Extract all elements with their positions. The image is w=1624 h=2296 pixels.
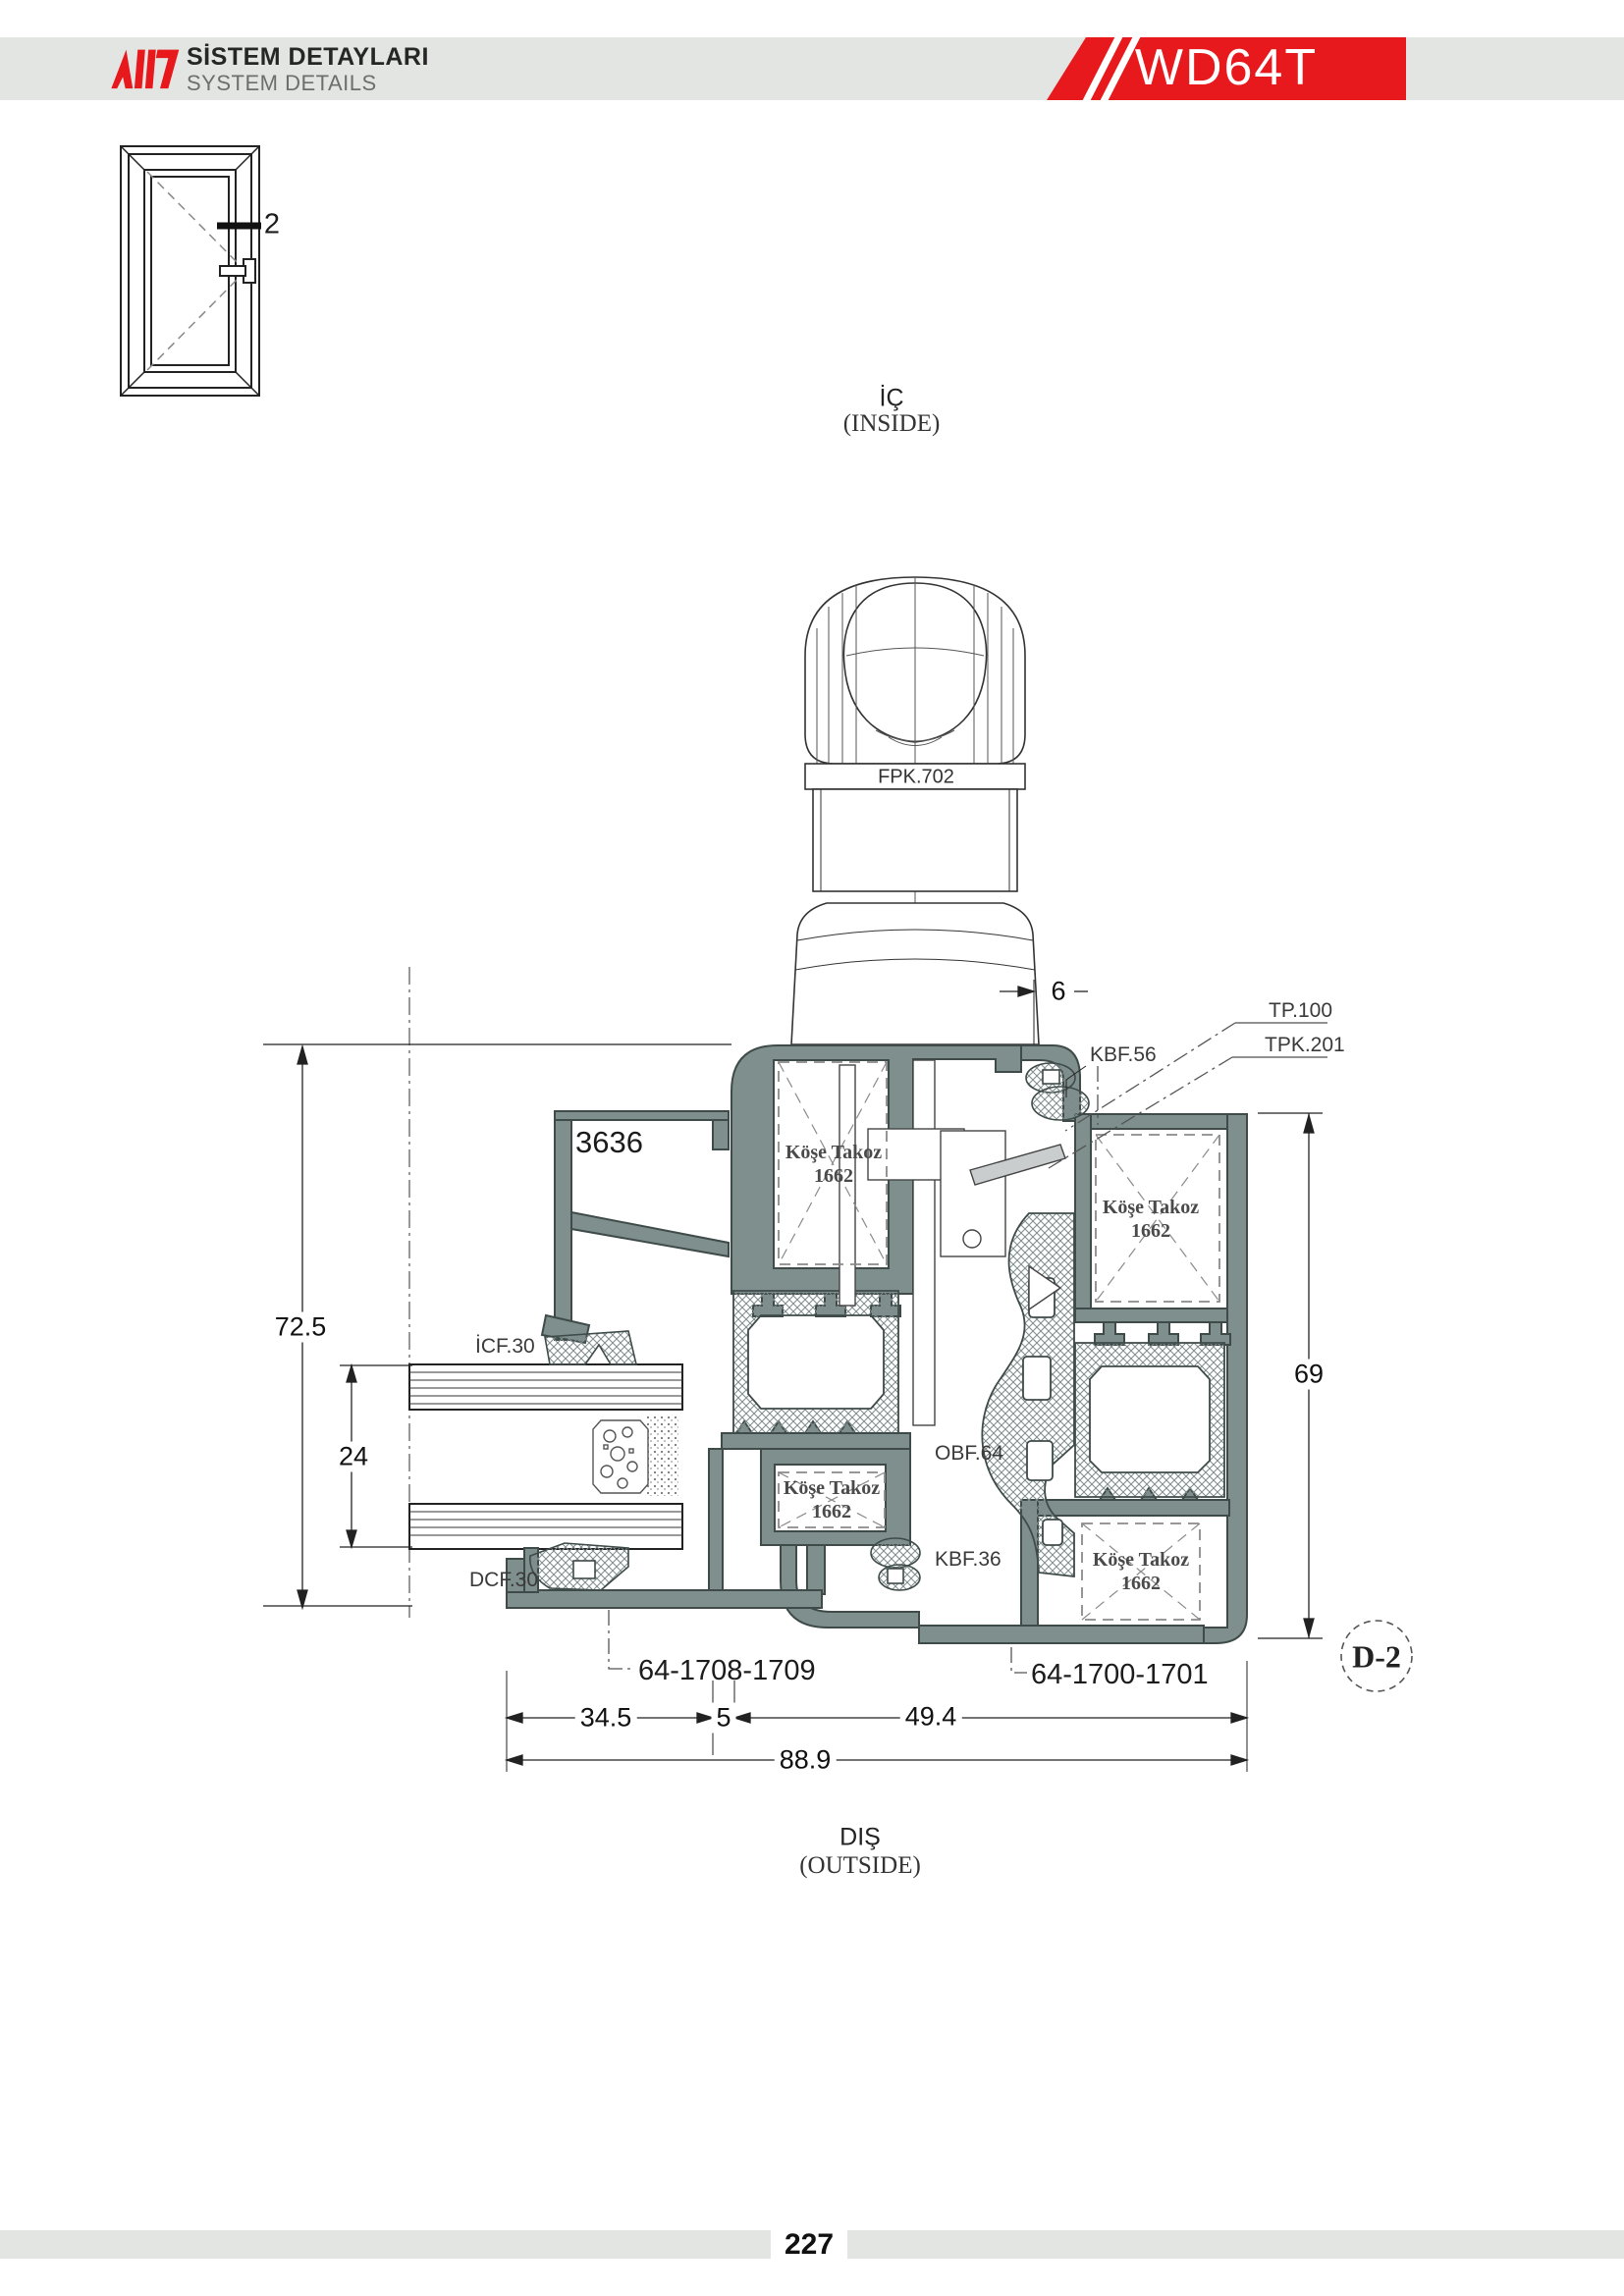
- obf64-label: OBF.64: [935, 1442, 1003, 1466]
- glazing-unit: [409, 1364, 682, 1549]
- handle-drawing: [791, 577, 1039, 1044]
- dim-glass: 24: [334, 1442, 373, 1472]
- dim-overall-height: 72.5: [270, 1312, 332, 1343]
- spacer-sealant: [647, 1415, 678, 1496]
- inside-label-en: (INSIDE): [843, 410, 941, 438]
- corner-block-label: Köşe Takoz 1662: [1103, 1196, 1199, 1243]
- dim-total-width: 88.9: [775, 1745, 837, 1776]
- icf30-label: İCF.30: [475, 1335, 535, 1359]
- glass-spacer: [593, 1420, 648, 1493]
- handle-label: FPK.702: [878, 767, 954, 789]
- section-marker: 2: [264, 209, 280, 241]
- outside-label-en: (OUTSIDE): [799, 1852, 921, 1880]
- dim-sash-width: 34.5: [575, 1703, 637, 1734]
- outside-label-tr: DIŞ: [839, 1824, 881, 1852]
- kbf56-label: KBF.56: [1090, 1043, 1157, 1067]
- inside-label-tr: İÇ: [880, 385, 904, 413]
- corner-block-label: Köşe Takoz 1662: [785, 1141, 882, 1188]
- dim-frame-height: 69: [1289, 1360, 1328, 1390]
- corner-block-label: Köşe Takoz 1662: [784, 1476, 880, 1523]
- corner-block-label: Köşe Takoz 1662: [1093, 1548, 1189, 1595]
- page-number: 227: [771, 2226, 847, 2264]
- frame-part-number: 64-1700-1701: [1031, 1659, 1209, 1691]
- dim-gap: 5: [711, 1703, 735, 1734]
- detail-ref: D-2: [1352, 1639, 1401, 1676]
- kbf36-gasket: [871, 1538, 920, 1590]
- glazing-bead-label: 3636: [575, 1125, 643, 1160]
- window-icon: [121, 146, 259, 396]
- dim-frame-width: 49.4: [900, 1702, 962, 1733]
- sash-part-number: 64-1708-1709: [638, 1655, 816, 1687]
- tp100-label: TP.100: [1269, 999, 1332, 1023]
- dim-handle-offset: 6: [1046, 977, 1070, 1007]
- kbf36-label: KBF.36: [935, 1548, 1001, 1572]
- catalog-page: SİSTEM DETAYLARI SYSTEM DETAILS WD64T: [0, 0, 1624, 2296]
- icf30-gasket: [545, 1331, 636, 1364]
- dcf30-label: DCF.30: [469, 1569, 538, 1592]
- tpk201-label: TPK.201: [1265, 1034, 1345, 1057]
